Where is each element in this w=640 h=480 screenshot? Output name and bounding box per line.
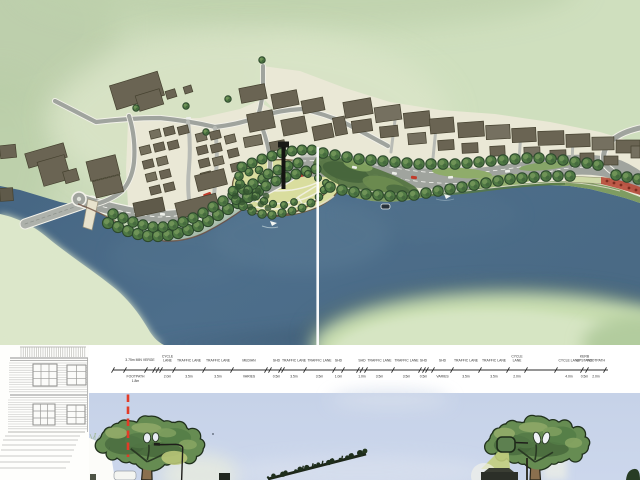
svg-text:TRAFFIC LANE: TRAFFIC LANE — [206, 359, 231, 363]
svg-text:3.5m: 3.5m — [403, 375, 411, 379]
svg-text:3.75m MIN VERGE: 3.75m MIN VERGE — [125, 358, 155, 362]
svg-text:2.0m: 2.0m — [513, 375, 521, 379]
svg-text:3.5m: 3.5m — [316, 375, 324, 379]
svg-text:0.5m: 0.5m — [581, 375, 589, 379]
svg-text:MEDIAN: MEDIAN — [242, 359, 256, 363]
svg-text:SHD: SHD — [273, 359, 281, 363]
svg-text:3.5m: 3.5m — [462, 375, 470, 379]
svg-text:3.5m: 3.5m — [185, 375, 193, 379]
svg-text:2.0m: 2.0m — [164, 375, 172, 379]
svg-text:1.0m: 1.0m — [358, 375, 366, 379]
svg-text:TRAFFIC LANE: TRAFFIC LANE — [282, 359, 307, 363]
svg-text:3.5m: 3.5m — [214, 375, 222, 379]
svg-text:TRAFFIC LANE: TRAFFIC LANE — [177, 359, 202, 363]
svg-text:LANE: LANE — [163, 359, 173, 363]
svg-text:1.0m: 1.0m — [335, 375, 343, 379]
svg-text:TRAFFIC LANE: TRAFFIC LANE — [454, 359, 479, 363]
svg-text:4.0m: 4.0m — [565, 375, 573, 379]
svg-text:3.5m: 3.5m — [290, 375, 298, 379]
svg-text:SHD: SHD — [358, 359, 366, 363]
svg-text:VARIES: VARIES — [243, 375, 256, 379]
svg-text:2.0m: 2.0m — [592, 375, 600, 379]
svg-text:TRAFFIC LANE: TRAFFIC LANE — [482, 359, 507, 363]
svg-text:TRAFFIC LANE: TRAFFIC LANE — [394, 359, 419, 363]
svg-text:SHD: SHD — [439, 359, 447, 363]
svg-text:FOOTPATH: FOOTPATH — [127, 375, 146, 379]
svg-text:LANE: LANE — [513, 359, 523, 363]
svg-text:TRAFFIC LANE: TRAFFIC LANE — [307, 359, 332, 363]
svg-text:3.5m: 3.5m — [376, 375, 384, 379]
svg-text:FOOTPATH: FOOTPATH — [587, 359, 606, 363]
svg-text:SHD: SHD — [420, 359, 428, 363]
svg-text:VARIES: VARIES — [436, 375, 449, 379]
svg-text:1.8m: 1.8m — [132, 379, 140, 383]
svg-text:SHD: SHD — [335, 359, 343, 363]
svg-text:3.5m: 3.5m — [490, 375, 498, 379]
svg-text:0.5m: 0.5m — [420, 375, 428, 379]
svg-text:TRAFFIC LANE: TRAFFIC LANE — [367, 359, 392, 363]
svg-text:0.5m: 0.5m — [273, 375, 281, 379]
